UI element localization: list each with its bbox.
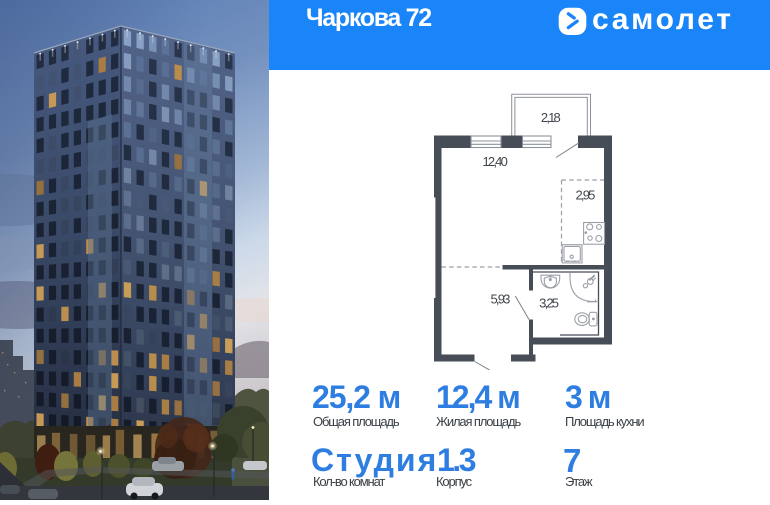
svg-text:3,25: 3,25 (539, 296, 559, 311)
svg-text:2,18: 2,18 (541, 110, 561, 125)
svg-text:12,40: 12,40 (483, 154, 508, 169)
svg-text:2,95: 2,95 (576, 188, 596, 203)
svg-text:5,93: 5,93 (491, 292, 511, 307)
